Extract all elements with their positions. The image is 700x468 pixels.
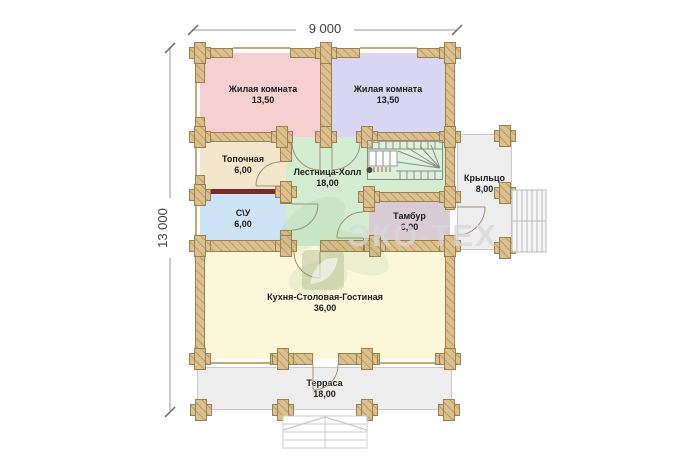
log-post-bar [194,348,206,370]
log-post-bar [280,235,292,257]
log-post-bar [443,399,455,421]
log-post-bar [194,184,206,206]
log-post-bar [444,348,456,370]
log-post [189,42,211,64]
terrace-steps [283,416,367,448]
log-post-bar [195,399,207,421]
log-post-bar [361,399,373,421]
log-post-bar [320,126,332,148]
window-line [380,362,435,364]
window-line [195,202,197,238]
log-post-bar [444,186,456,208]
log-post-bar [194,235,206,257]
room-bedroom-right: Жилая комната13,50 [326,53,450,137]
floor-plan: Жилая комната13,50 Жилая комната13,50 То… [0,0,700,468]
room-bathroom: С\У6,00 [200,192,286,246]
window-line [360,47,417,49]
log-post [275,181,297,203]
room-label: Жилая комната13,50 [354,84,422,106]
window-line [195,83,197,117]
log-post-bar [276,126,288,148]
log-post [358,186,380,208]
room-terrace: Терраса18,00 [197,367,452,410]
log-post [190,399,212,421]
log-post-bar [361,126,373,148]
room-label: Лестница-Холл18,00 [294,167,362,189]
log-post [272,348,294,370]
log-post-bar [499,125,511,147]
log-post [189,184,211,206]
log-post [315,42,337,64]
log-post [356,348,378,370]
log-post [439,126,461,148]
log-post-bar [277,348,289,370]
room-kitchen: Кухня-Столовая-Гостиная36,00 [200,246,450,359]
window-line [195,148,197,175]
window-line [233,47,290,49]
watermark-brand-text: ЭКО-ТЕХ [348,219,548,253]
log-post [189,348,211,370]
partition-red [203,189,280,194]
log-post [439,348,461,370]
log-post [356,399,378,421]
wall-segment [195,238,205,365]
log-post [439,186,461,208]
room-label: Кухня-Столовая-Гостиная36,00 [267,292,383,314]
log-post-bar [444,42,456,64]
room-bedroom-left: Жилая комната13,50 [200,53,326,137]
dimension-width-label: 9 000 [296,21,354,37]
log-post [272,399,294,421]
log-post-bar [363,186,375,208]
log-post [189,235,211,257]
dimension-height-label: 13 000 [155,198,171,258]
log-post [271,126,293,148]
room-label: Топочная6,00 [222,154,264,176]
log-post [275,235,297,257]
window-line [210,362,270,364]
log-post-bar [361,348,373,370]
log-post-bar [280,181,292,203]
log-post-bar [194,42,206,64]
log-post [438,399,460,421]
log-post [494,182,516,204]
log-post [315,126,337,148]
room-label: Терраса18,00 [306,378,342,400]
log-post [356,126,378,148]
log-post [439,42,461,64]
log-post-bar [320,42,332,64]
wall-segment [445,240,455,365]
log-post [494,125,516,147]
room-hall-stairs-area [369,137,450,197]
log-post-bar [194,126,206,148]
room-label: Жилая комната13,50 [229,84,297,106]
log-post-bar [444,126,456,148]
log-post-bar [499,182,511,204]
log-post-bar [277,399,289,421]
log-post [189,126,211,148]
room-label: С\У6,00 [234,208,252,230]
